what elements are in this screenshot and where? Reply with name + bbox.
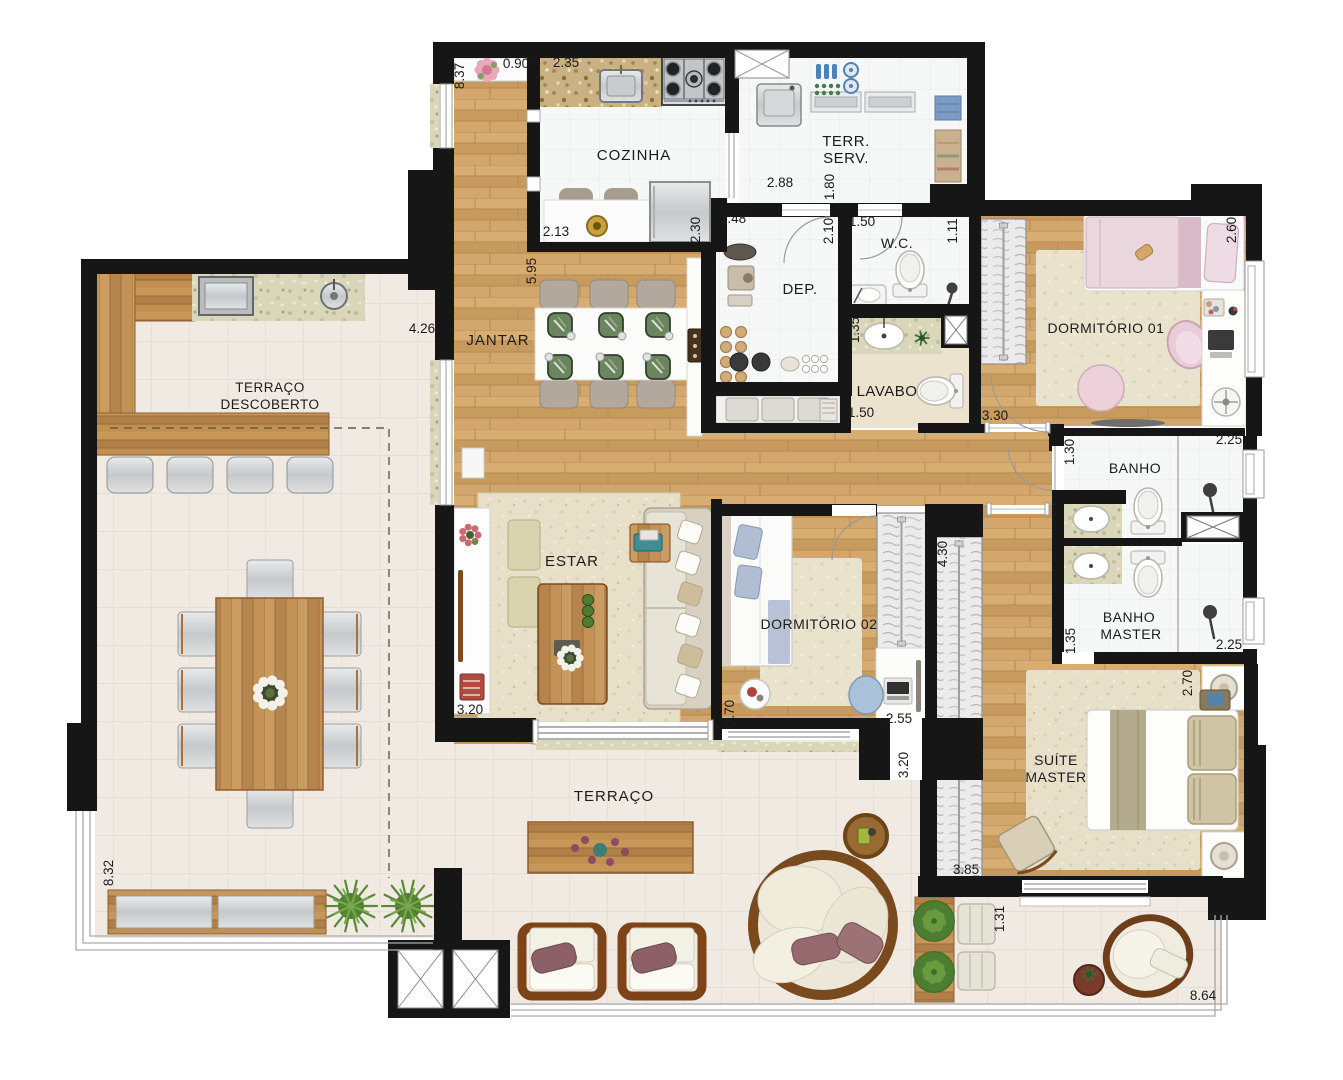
svg-text:2.70: 2.70	[1180, 670, 1195, 696]
svg-text:SUÍTE: SUÍTE	[1034, 752, 1078, 768]
svg-text:BANHO: BANHO	[1109, 460, 1161, 476]
svg-text:3.20: 3.20	[896, 752, 911, 778]
svg-text:DORMITÓRIO 01: DORMITÓRIO 01	[1048, 320, 1165, 336]
svg-text:2.25: 2.25	[1216, 432, 1242, 447]
svg-text:4.26: 4.26	[409, 321, 435, 336]
svg-text:LAVABO: LAVABO	[857, 383, 918, 400]
svg-text:TERRAÇO: TERRAÇO	[235, 380, 305, 395]
svg-text:1.48: 1.48	[720, 211, 746, 226]
svg-text:DEP.: DEP.	[782, 281, 817, 298]
svg-text:1.80: 1.80	[822, 174, 837, 200]
svg-text:COZINHA: COZINHA	[597, 147, 672, 164]
svg-text:TERRAÇO: TERRAÇO	[574, 788, 654, 805]
svg-text:0.90: 0.90	[503, 56, 529, 71]
svg-text:JANTAR: JANTAR	[466, 332, 529, 349]
svg-text:W.C.: W.C.	[881, 235, 913, 251]
svg-text:8.37: 8.37	[452, 63, 467, 89]
svg-text:4.30: 4.30	[935, 541, 950, 567]
svg-text:BANHO: BANHO	[1103, 609, 1155, 625]
svg-text:8.32: 8.32	[101, 860, 116, 886]
svg-text:1.50: 1.50	[849, 214, 875, 229]
svg-text:1.30: 1.30	[1062, 439, 1077, 465]
svg-text:2.70: 2.70	[722, 700, 737, 726]
svg-text:SERV.: SERV.	[823, 150, 869, 167]
svg-text:5.95: 5.95	[524, 258, 539, 284]
svg-text:3.30: 3.30	[982, 408, 1008, 423]
svg-text:MASTER: MASTER	[1025, 769, 1086, 785]
svg-text:3.85: 3.85	[953, 862, 979, 877]
svg-text:3.20: 3.20	[457, 702, 483, 717]
svg-text:2.13: 2.13	[543, 224, 569, 239]
svg-text:2.55: 2.55	[886, 711, 912, 726]
svg-text:1.35: 1.35	[1063, 628, 1078, 654]
svg-text:1.11: 1.11	[945, 218, 960, 243]
svg-text:2.35: 2.35	[553, 55, 579, 70]
svg-text:1.50: 1.50	[848, 405, 874, 420]
svg-text:1.35: 1.35	[847, 317, 862, 343]
svg-text:2.25: 2.25	[1216, 637, 1242, 652]
svg-text:2.30: 2.30	[688, 217, 703, 243]
svg-text:MASTER: MASTER	[1100, 626, 1161, 642]
svg-text:2.88: 2.88	[767, 175, 793, 190]
svg-text:DESCOBERTO: DESCOBERTO	[220, 397, 319, 412]
svg-text:TERR.: TERR.	[822, 133, 870, 150]
svg-text:ESTAR: ESTAR	[545, 553, 599, 570]
svg-text:8.64: 8.64	[1190, 988, 1217, 1003]
svg-text:1.31: 1.31	[992, 906, 1007, 932]
svg-text:2.60: 2.60	[1224, 217, 1239, 243]
svg-text:2.10: 2.10	[821, 218, 836, 244]
svg-text:DORMITÓRIO 02: DORMITÓRIO 02	[761, 616, 878, 632]
